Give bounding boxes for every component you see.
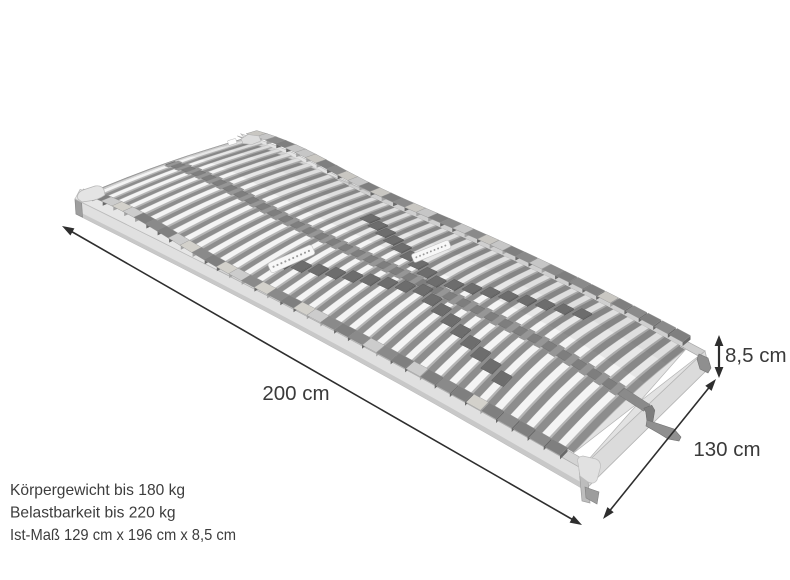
svg-text:Körpergewicht bis 180 kg: Körpergewicht bis 180 kg <box>10 482 185 499</box>
svg-text:130 cm: 130 cm <box>693 438 760 461</box>
svg-text:200 cm: 200 cm <box>262 382 329 405</box>
svg-text:Belastbarkeit bis 220 kg: Belastbarkeit bis 220 kg <box>10 505 176 522</box>
svg-text:8,5 cm: 8,5 cm <box>725 344 787 367</box>
svg-text:Ist-Maß 129 cm x 196 cm x 8,5: Ist-Maß 129 cm x 196 cm x 8,5 cm <box>10 527 236 544</box>
